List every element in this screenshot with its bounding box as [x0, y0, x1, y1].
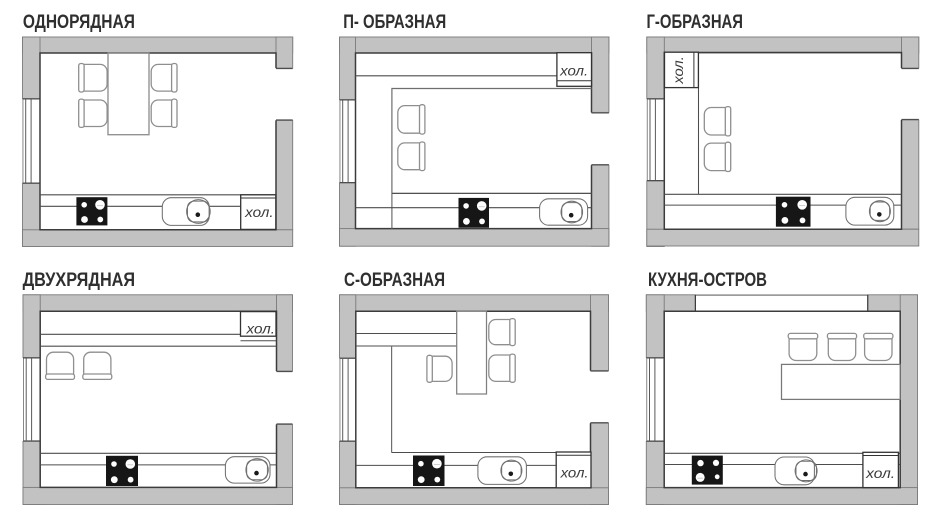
svg-text:хол.: хол.: [560, 465, 589, 481]
svg-text:Г-ОБРАЗНАЯ: Г-ОБРАЗНАЯ: [647, 12, 744, 33]
svg-text:хол.: хол.: [245, 321, 275, 337]
svg-text:ОДНОРЯДНАЯ: ОДНОРЯДНАЯ: [23, 12, 135, 33]
svg-text:П- ОБРАЗНАЯ: П- ОБРАЗНАЯ: [343, 12, 446, 33]
svg-text:хол.: хол.: [865, 466, 895, 482]
svg-text:хол.: хол.: [671, 56, 687, 85]
svg-text:С-ОБРАЗНАЯ: С-ОБРАЗНАЯ: [344, 270, 445, 291]
svg-text:КУХНЯ-ОСТРОВ: КУХНЯ-ОСТРОВ: [648, 270, 767, 291]
svg-text:хол.: хол.: [559, 64, 588, 80]
svg-text:ДВУХРЯДНАЯ: ДВУХРЯДНАЯ: [23, 270, 136, 291]
svg-text:хол.: хол.: [244, 205, 274, 221]
